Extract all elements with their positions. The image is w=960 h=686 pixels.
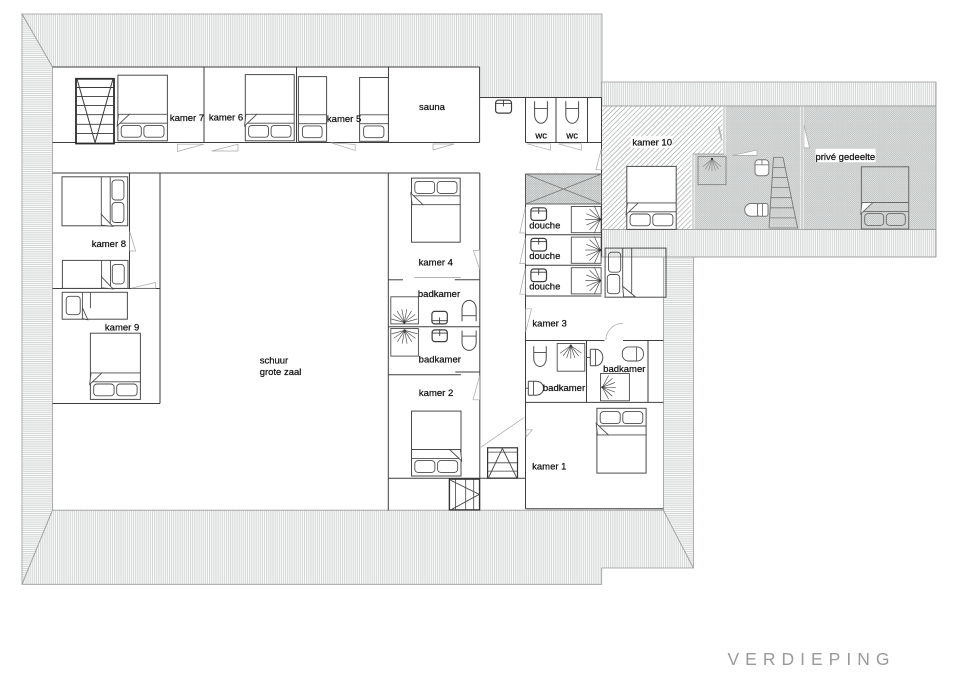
svg-text:schuur: schuur (260, 356, 289, 367)
svg-text:wc: wc (565, 130, 578, 141)
svg-text:wc: wc (534, 130, 547, 141)
svg-text:douche: douche (529, 251, 560, 262)
svg-text:kamer 4: kamer 4 (419, 258, 453, 269)
svg-text:VERDIEPING: VERDIEPING (728, 649, 896, 669)
svg-text:douche: douche (529, 282, 560, 293)
svg-text:sauna: sauna (419, 102, 446, 113)
svg-text:grote zaal: grote zaal (260, 367, 302, 378)
svg-text:kamer 10: kamer 10 (632, 137, 672, 148)
svg-text:kamer 1: kamer 1 (532, 461, 566, 472)
svg-text:kamer 8: kamer 8 (92, 239, 126, 250)
svg-text:kamer 3: kamer 3 (532, 318, 566, 329)
svg-text:kamer 7: kamer 7 (170, 113, 204, 124)
svg-text:kamer 9: kamer 9 (105, 322, 139, 333)
svg-text:badkamer: badkamer (418, 289, 460, 300)
svg-text:kamer 6: kamer 6 (209, 113, 243, 124)
svg-text:badkamer: badkamer (603, 364, 645, 375)
svg-text:badkamer: badkamer (543, 383, 585, 394)
svg-text:kamer 2: kamer 2 (419, 388, 453, 399)
svg-text:privé gedeelte: privé gedeelte (815, 152, 875, 163)
svg-text:kamer 5: kamer 5 (327, 114, 361, 125)
svg-text:douche: douche (529, 220, 560, 231)
svg-text:badkamer: badkamer (419, 355, 461, 366)
